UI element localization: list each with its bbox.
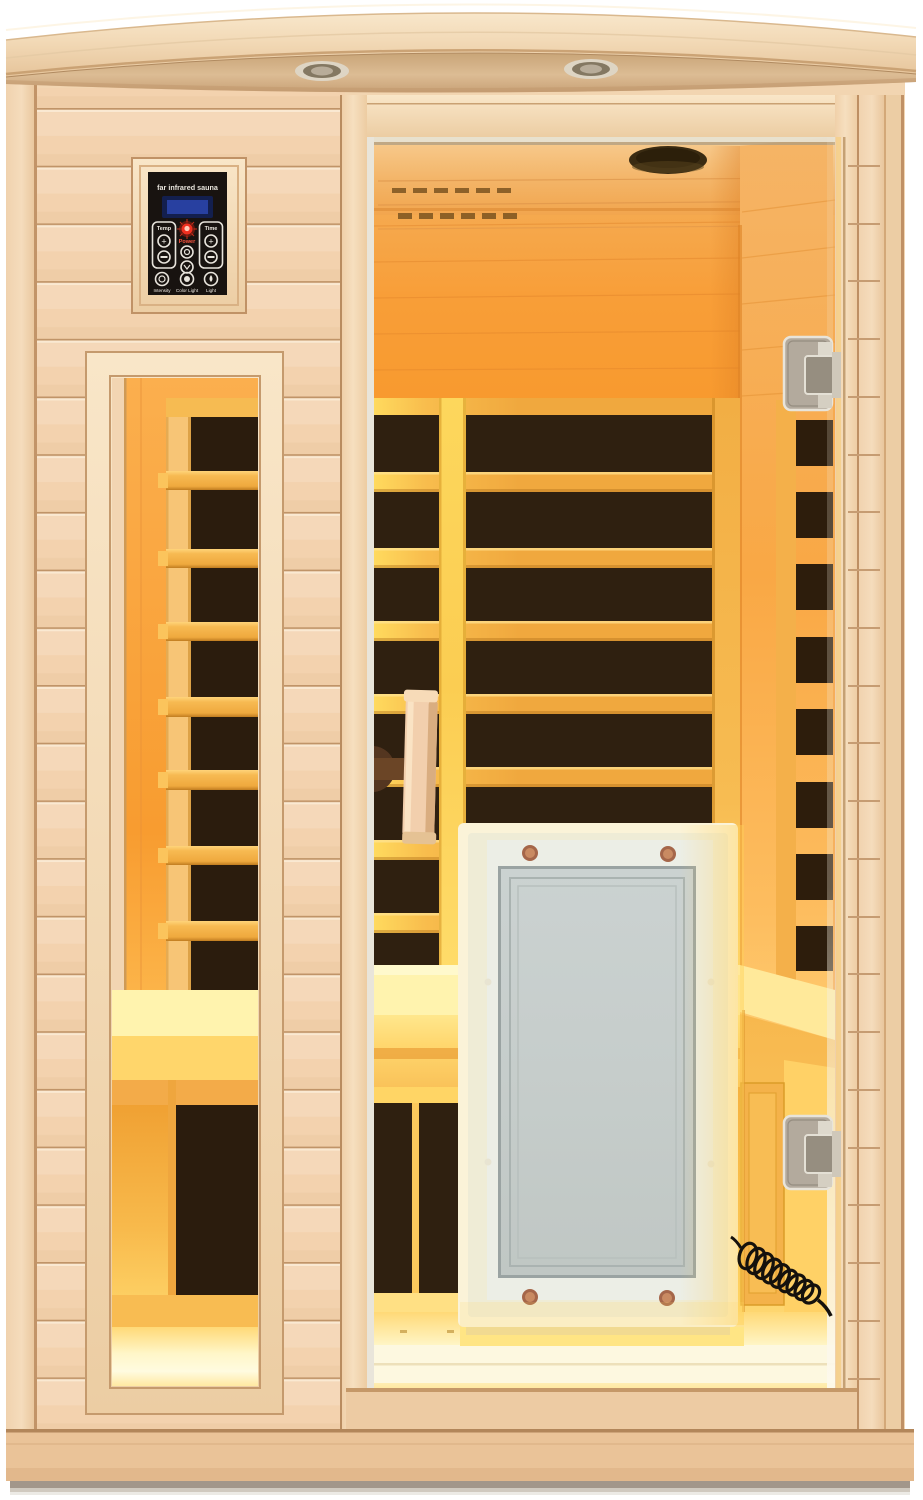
svg-text:+: + (161, 237, 166, 247)
svg-text:Color Light: Color Light (176, 288, 199, 293)
svg-text:+: + (208, 237, 213, 247)
svg-text:Intensity: Intensity (153, 288, 171, 293)
svg-text:Temp: Temp (157, 226, 172, 232)
svg-text:Light: Light (206, 288, 217, 293)
svg-text:Power: Power (179, 239, 196, 245)
svg-text:far infrared sauna: far infrared sauna (157, 183, 219, 192)
svg-text:Time: Time (205, 226, 218, 232)
